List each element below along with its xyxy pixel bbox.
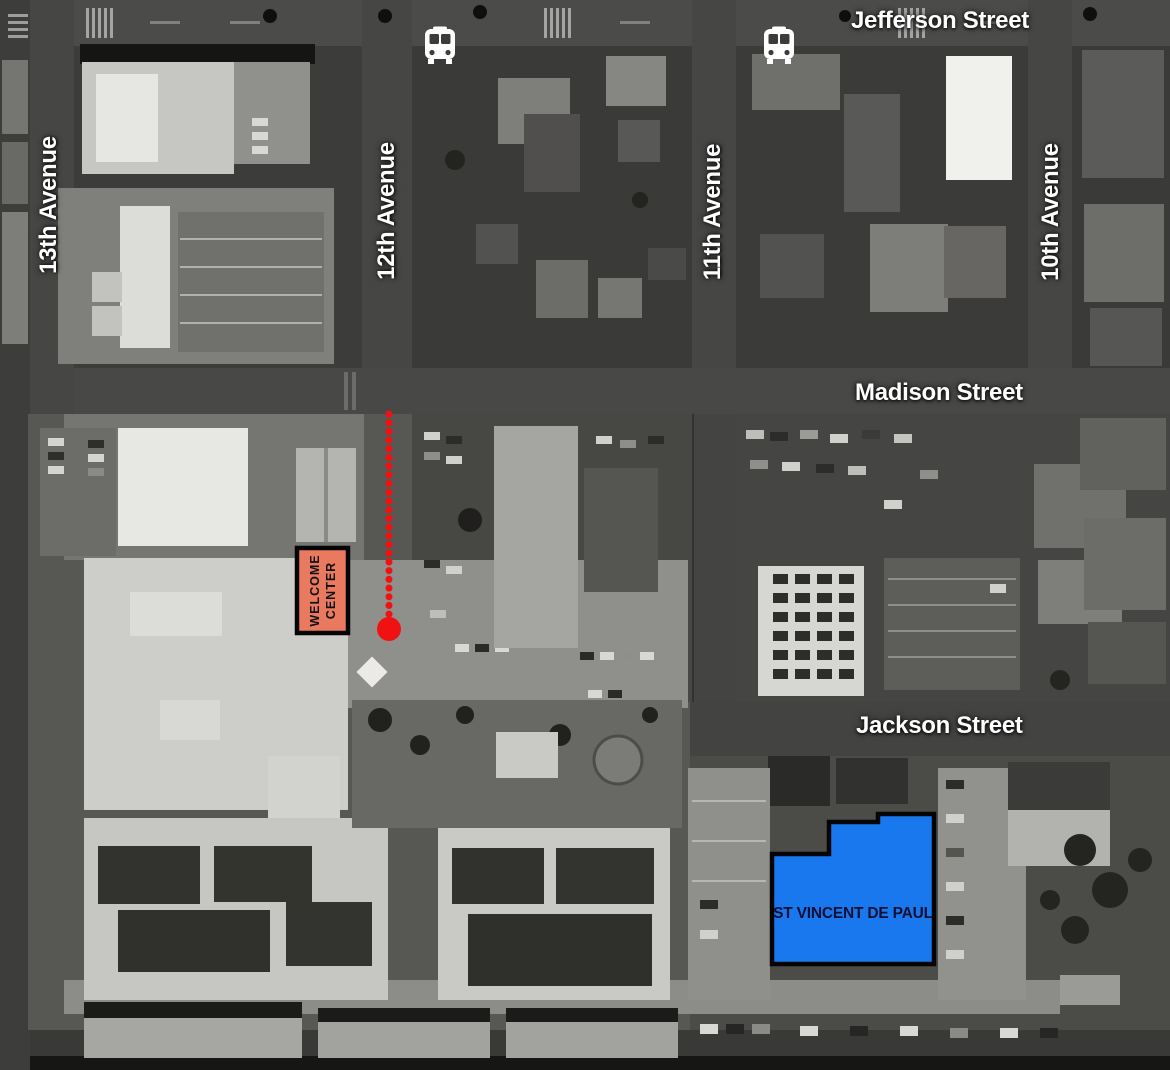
avenue-label-11th: 11th Avenue <box>699 144 727 280</box>
st-vincent-de-paul-outline[interactable] <box>772 814 934 964</box>
route-destination-dot[interactable] <box>377 617 401 641</box>
avenue-label-10th: 10th Avenue <box>1037 143 1065 281</box>
bus-icon <box>755 21 803 69</box>
campus-map: WELCOME CENTER ST VINCENT DE PAUL Jeffer… <box>0 0 1170 1070</box>
welcome-center-label-line2: CENTER <box>324 562 338 619</box>
bus-stop-marker-east[interactable] <box>755 21 803 69</box>
avenue-label-13th: 13th Avenue <box>35 136 63 274</box>
map-annotations: WELCOME CENTER ST VINCENT DE PAUL <box>0 0 1170 1070</box>
st-vincent-de-paul-marker[interactable]: ST VINCENT DE PAUL <box>772 814 934 964</box>
street-label-madison: Madison Street <box>855 379 1023 407</box>
st-vincent-de-paul-label: ST VINCENT DE PAUL <box>773 905 933 922</box>
bus-stop-marker-west[interactable] <box>416 21 464 69</box>
street-label-jefferson: Jefferson Street <box>851 7 1029 35</box>
avenue-label-12th: 12th Avenue <box>373 142 401 280</box>
welcome-center-marker[interactable]: WELCOME CENTER <box>297 548 348 633</box>
bus-icon <box>416 21 464 69</box>
street-label-jackson: Jackson Street <box>856 712 1023 740</box>
welcome-center-label-line1: WELCOME <box>308 554 322 626</box>
welcome-center-box[interactable] <box>297 548 348 633</box>
